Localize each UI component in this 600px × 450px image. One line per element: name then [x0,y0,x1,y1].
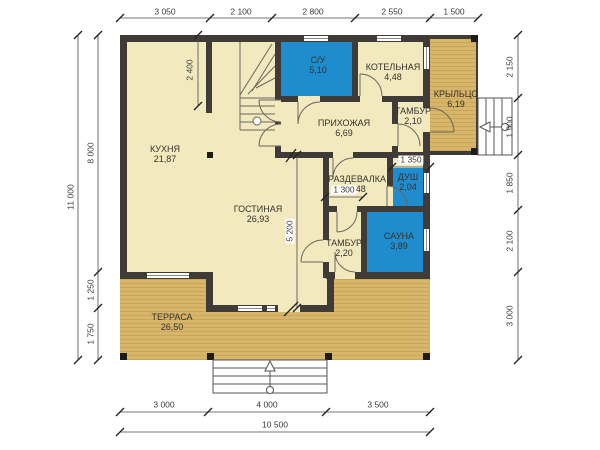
dim-bottom-1: 3 000 [153,401,174,410]
dim-right-5: 3 000 [506,305,515,326]
room-label-vestibule: ТАМБУР2,10 [395,106,431,126]
room-label-vestibule2: ТАМБУР2,20 [326,238,362,258]
window-top-boiler [376,35,402,42]
door-gap-vestibule [392,124,398,146]
room-label-shower: ДУШ2,04 [398,172,418,192]
window-top-bathroom [303,35,329,42]
dim-top-4: 2 550 [381,8,402,17]
dim-interior-dressing: 1 300 [331,186,356,195]
porch-post-2 [471,148,478,155]
dim-top-3: 2 800 [302,8,323,17]
window-right-sauna [423,228,430,252]
wall-bathroom-boiler [352,42,358,102]
dim-top-1: 3 050 [154,8,175,17]
dim-right-4: 2 100 [506,230,515,251]
window-living-south-1 [237,305,263,312]
door-gap-terrace [278,305,300,312]
terrace-steps [213,360,327,394]
room-label-bathroom: С/У5,10 [309,55,327,75]
door-gap-kitchen-b [275,124,281,146]
dim-bottom-2: 4 000 [256,401,277,410]
door-gap-vestibule2-top [337,206,357,212]
room-label-hall: ПРИХОЖАЯ6,69 [318,118,370,138]
room-label-terrace: ТЕРРАСА26,50 [151,312,192,332]
porch-post-1 [471,35,478,42]
window-right-boiler [423,46,430,70]
door-gap-vestibule2-bottom [335,272,355,279]
window-living-south-2 [266,305,276,312]
dim-interior-living: 5 200 [286,218,295,243]
dim-top-2: 2 100 [230,8,251,17]
dim-interior-shower: 1 350 [398,156,423,165]
door-gap-bathroom [298,96,320,102]
dim-interior-stair: 2 400 [186,59,195,80]
door-gap-boiler [360,96,382,102]
wall-exterior-left [120,35,127,279]
room-label-porch: КРЫЛЬЦО6,19 [434,89,479,109]
floor-plan: КУХНЯ21,87 ГОСТИНАЯ26,93 С/У5,10 КОТЕЛЬН… [0,0,600,450]
dim-bottom-3: 3 500 [367,401,388,410]
door-gap-dressing [333,152,353,158]
dim-right-2: 1 900 [506,116,515,137]
kitchen-column [207,152,213,158]
terrace-post-3 [325,353,332,360]
dim-bottom-total: 10 500 [262,421,288,430]
wall-bay-right [327,272,334,312]
dim-left-2: 1 250 [87,279,96,300]
window-right-shower [423,172,430,194]
door-gap-shower [387,186,393,206]
room-label-livingroom: ГОСТИНАЯ26,93 [234,204,283,224]
door-gap-kitchen-a [275,100,281,122]
dim-top-5: 1 500 [443,8,464,17]
terrace-post-2 [207,353,214,360]
terrace-post-4 [423,353,430,360]
dim-right-1: 2 150 [506,56,515,77]
dim-right-3: 1 850 [506,172,515,193]
room-label-kitchen: КУХНЯ21,87 [150,144,180,164]
room-label-boiler: КОТЕЛЬНАЯ4,48 [366,62,420,82]
room-label-sauna: САУНА3,89 [384,231,414,251]
terrace-post-1 [120,353,127,360]
window-kitchen-south [146,272,190,279]
dim-left-1: 8 000 [87,142,96,163]
wall-kitchen-stub [206,42,212,113]
dim-left-total: 11 000 [67,184,76,209]
dim-left-3: 1 750 [87,323,96,344]
